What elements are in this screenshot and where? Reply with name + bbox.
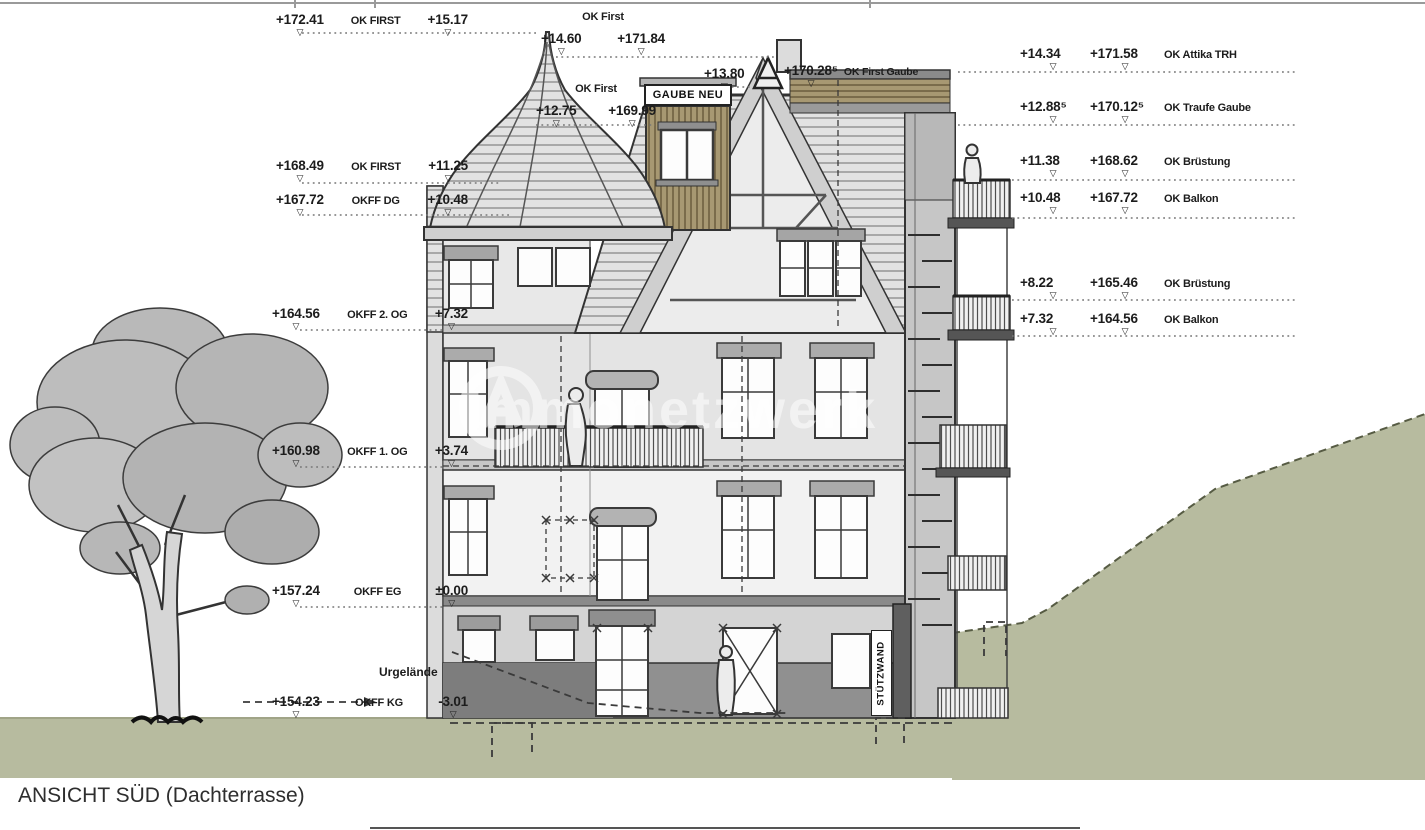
elevation-label: OKFF EG [354, 584, 402, 600]
elevation-value: +7.32 [1020, 311, 1086, 327]
elevation-label: OKFF 2. OG [347, 307, 407, 323]
elevation-value: +170.28⁵ [784, 63, 838, 79]
elevation-value: +11.38 [1020, 153, 1086, 169]
elevation-label: OK Brüstung [1164, 154, 1230, 170]
elevation-value: +167.72 [276, 192, 324, 208]
annotation-top-1: OK First +12.75 +169.99 [536, 80, 656, 119]
elevation-value: +168.62 [1090, 153, 1160, 169]
annotation-left-6: +154.23 OKFF KG -3.01 [272, 694, 468, 711]
elevation-value: +10.48 [1020, 190, 1086, 206]
elevation-value: +164.56 [272, 306, 320, 322]
elevation-value: +171.58 [1090, 46, 1160, 62]
elevation-value: +3.74 [435, 443, 468, 459]
retaining-wall [893, 604, 911, 718]
elevation-drawing: +172.41 OK FIRST +15.17 +168.49 OK FIRST… [0, 0, 1425, 830]
elevation-label: OK Balkon [1164, 191, 1218, 207]
elevation-value: +7.32 [435, 306, 468, 322]
annotation-top-2: +170.28⁵ OK First Gaube [784, 63, 918, 80]
hill [952, 414, 1425, 780]
elevation-label: OK FIRST [351, 159, 401, 175]
annotation-right-2: +11.38 +168.62 OK Brüstung [1020, 153, 1230, 170]
elevation-value: +167.72 [1090, 190, 1160, 206]
elevation-label: OKFF 1. OG [347, 444, 407, 460]
urgelaende-label: Urgelände [379, 665, 438, 679]
annotation-left-4: +160.98 OKFF 1. OG +3.74 [272, 443, 468, 460]
annotation-left-1: +168.49 OK FIRST +11.25 [276, 158, 468, 175]
person-balcony [967, 145, 978, 156]
elevation-value: +14.34 [1020, 46, 1086, 62]
elevation-value: +172.41 [276, 12, 324, 28]
stuetzwand-label: STÜTZWAND [871, 630, 892, 716]
elevation-value: +15.17 [428, 12, 468, 28]
elevation-value: +13.80 [704, 66, 744, 82]
stuetzwand-text: STÜTZWAND [876, 641, 887, 705]
elevation-value: +154.23 [272, 694, 320, 710]
elevation-label: OK First [582, 11, 624, 23]
tree [10, 308, 342, 722]
terrace-railing [495, 427, 703, 467]
elevation-value: +12.75 [536, 103, 576, 119]
drawing-title: ANSICHT SÜD (Dachterrasse) [18, 784, 305, 808]
person-door [720, 646, 732, 658]
elevation-value: +164.56 [1090, 311, 1160, 327]
elevation-label: OK Attika TRH [1164, 47, 1237, 63]
elevation-value: +14.60 [541, 31, 581, 47]
elevation-label: OK Traufe Gaube [1164, 100, 1251, 116]
elevation-value: -3.01 [438, 694, 468, 710]
annotation-left-5: +157.24 OKFF EG ±0.00 [272, 583, 468, 600]
person-terrace [569, 388, 583, 402]
annotation-right-3: +10.48 +167.72 OK Balkon [1020, 190, 1218, 207]
elevation-value: +165.46 [1090, 275, 1160, 291]
elevation-label: OK Balkon [1164, 312, 1218, 328]
annotation-left-2: +167.72 OKFF DG +10.48 [276, 192, 468, 209]
elevation-value: +168.49 [276, 158, 324, 174]
elevation-value: +8.22 [1020, 275, 1086, 291]
elevation-value: ±0.00 [435, 583, 468, 599]
elevation-value: +10.48 [428, 192, 468, 208]
elevation-value: +170.12⁵ [1090, 99, 1160, 115]
annotation-left-0: +172.41 OK FIRST +15.17 [276, 12, 468, 29]
annotation-right-1: +12.88⁵ +170.12⁵ OK Traufe Gaube [1020, 99, 1251, 116]
elevation-value: +12.88⁵ [1020, 99, 1086, 115]
elevation-label: OK Brüstung [1164, 276, 1230, 292]
elevation-label: OKFF KG [355, 695, 403, 711]
gaube-neu-label: GAUBE NEU [644, 84, 732, 106]
annotation-right-0: +14.34 +171.58 OK Attika TRH [1020, 46, 1237, 63]
elevation-value: +171.84 [617, 31, 665, 47]
elevation-label: OK FIRST [351, 13, 401, 29]
drawing-canvas [0, 0, 1425, 830]
annotation-top-2-rel: +13.80 [704, 66, 744, 82]
annotation-left-3: +164.56 OKFF 2. OG +7.32 [272, 306, 468, 323]
elevation-label: OK First Gaube [844, 64, 918, 80]
annotation-right-5: +7.32 +164.56 OK Balkon [1020, 311, 1218, 328]
annotation-right-4: +8.22 +165.46 OK Brüstung [1020, 275, 1230, 292]
building [424, 32, 1014, 718]
elevation-label: OKFF DG [352, 193, 400, 209]
elevation-value: +11.25 [428, 158, 468, 174]
elevation-value: +160.98 [272, 443, 320, 459]
elevation-value: +157.24 [272, 583, 320, 599]
elevation-label: OK First [575, 83, 617, 95]
annotation-top-0: OK First +14.60 +171.84 [541, 8, 665, 47]
